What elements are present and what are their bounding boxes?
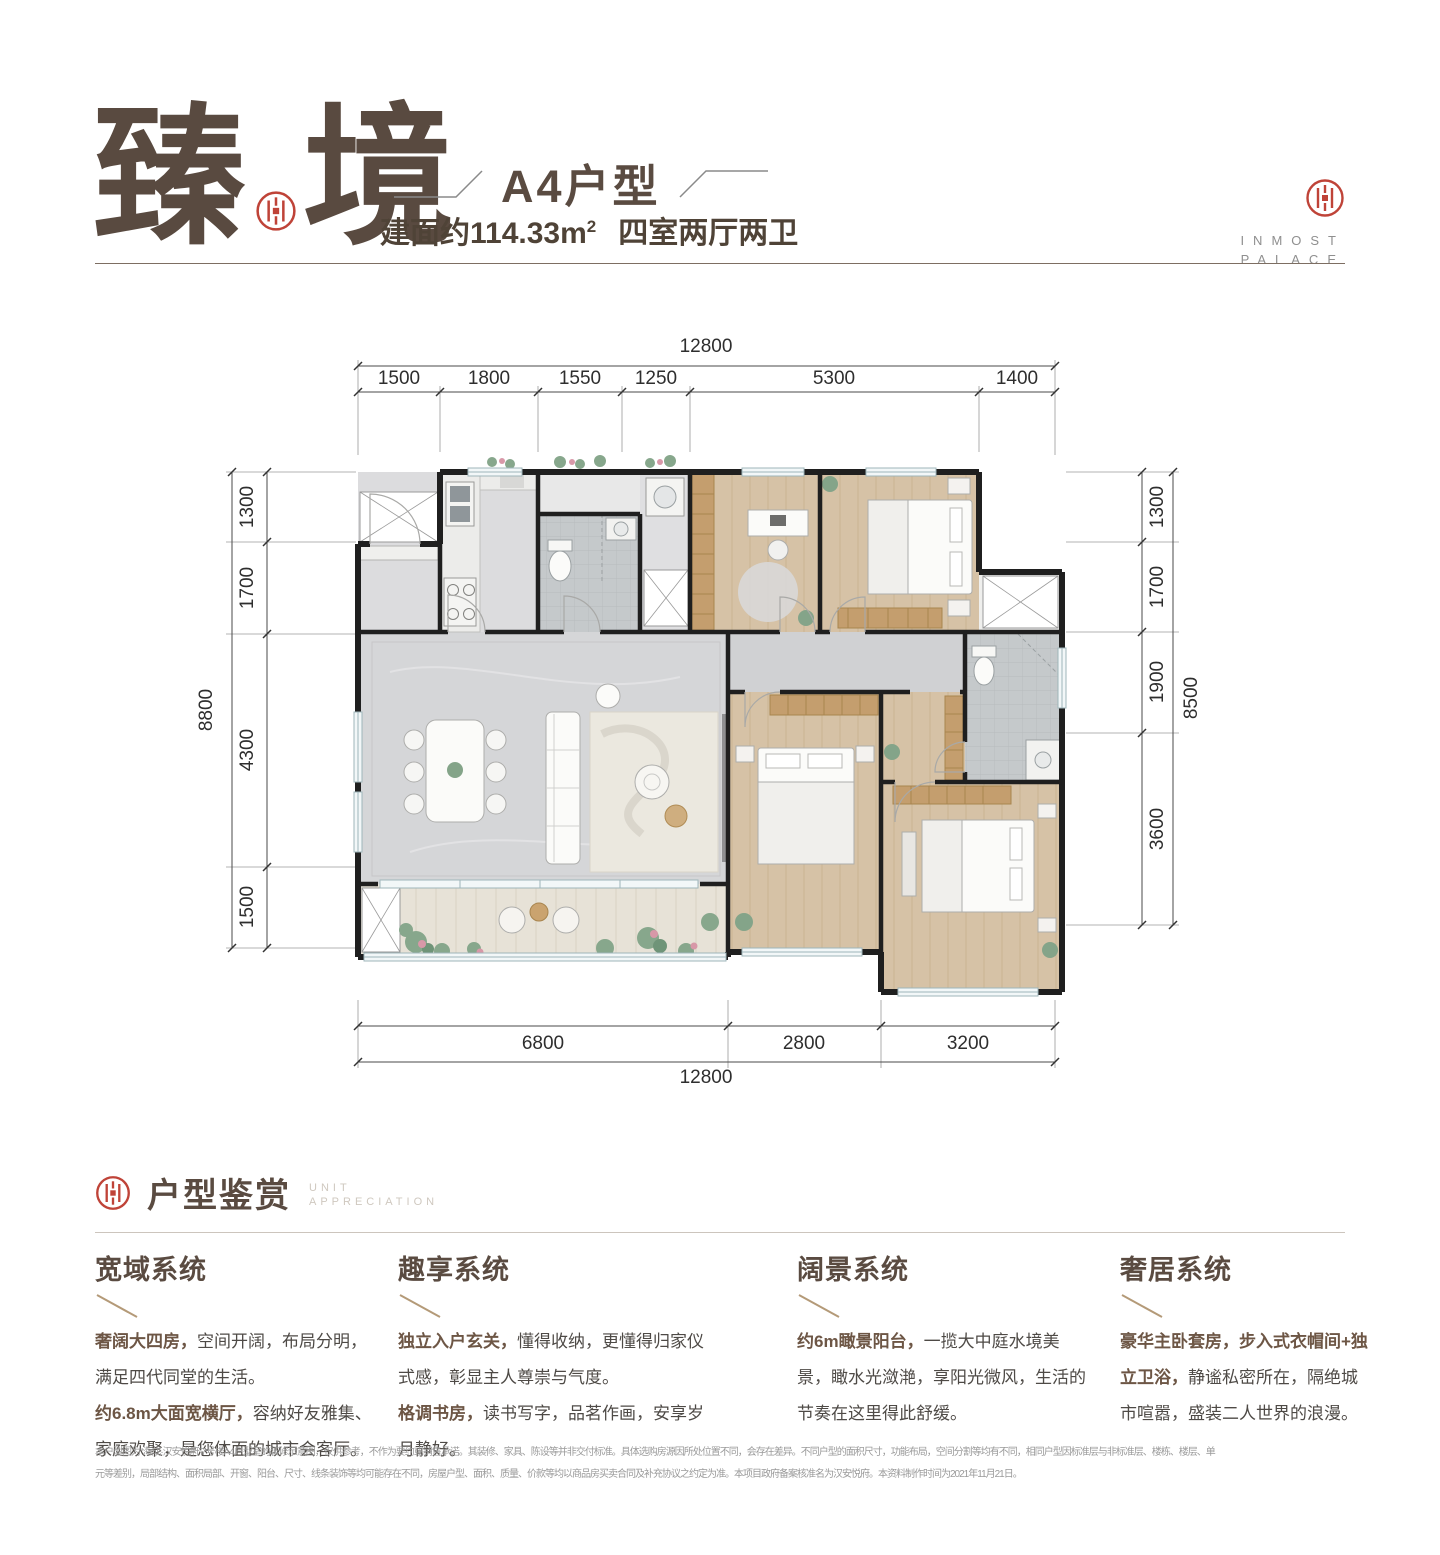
dining-set <box>404 720 506 822</box>
dim-top-total: 12800 <box>680 336 733 358</box>
section-subtitle: UNIT APPRECIATION <box>309 1181 438 1209</box>
heading-slash-decoration <box>797 1293 843 1319</box>
dim-top-seg: 1800 <box>468 368 510 390</box>
corridor-floor <box>690 632 979 692</box>
disclaimer-line-2: 元等差别，局部结构、面积局部、开窗、阳台、尺寸、线条装饰等均可能存在不同，房屋户… <box>95 1464 1375 1486</box>
dim-top-seg: 1550 <box>559 368 601 390</box>
section-header: 户型鉴赏 UNIT APPRECIATION <box>95 1168 438 1217</box>
feature-column-3: 阔景系统 约6m瞰景阳台，一揽大中庭水境美景，瞰水光潋滟，享阳光微风，生活的节奏… <box>797 1248 1087 1432</box>
dim-bottom-seg: 6800 <box>522 1033 564 1055</box>
dim-left-seg: 1500 <box>237 886 259 928</box>
section-seal-icon <box>95 1175 131 1211</box>
dim-bottom-total: 12800 <box>680 1067 733 1089</box>
dim-left-seg: 1700 <box>237 567 259 609</box>
dim-right-seg: 1300 <box>1147 486 1169 528</box>
flower-box <box>487 455 676 469</box>
dim-right-seg: 1900 <box>1147 661 1169 703</box>
column-heading: 宽域系统 <box>95 1248 383 1287</box>
feature-column-2: 趣享系统 独立入户玄关，懂得收纳，更懂得归家仪式感，彰显主人尊崇与气度。 格调书… <box>398 1248 713 1468</box>
feature-column-4: 奢居系统 豪华主卧套房，步入式衣帽间+独立卫浴，静谧私密所在，隔绝城市喧嚣，盛装… <box>1120 1248 1370 1432</box>
dim-top-seg: 5300 <box>813 368 855 390</box>
dim-top-seg: 1400 <box>996 368 1038 390</box>
dim-right-total: 8500 <box>1181 677 1203 719</box>
dim-top-seg: 1500 <box>378 368 420 390</box>
column-heading: 阔景系统 <box>797 1248 1087 1287</box>
feature-column-1: 宽域系统 奢阔大四房，空间开阔，布局分明，满足四代同堂的生活。 约6.8m大面宽… <box>95 1248 383 1468</box>
entry <box>360 492 438 560</box>
section-divider <box>95 1232 1345 1233</box>
column-heading: 奢居系统 <box>1120 1248 1370 1287</box>
floor-plan <box>350 452 1072 1012</box>
closet-nook <box>983 576 1058 628</box>
heading-slash-decoration <box>1120 1293 1166 1319</box>
heading-slash-decoration <box>398 1293 444 1319</box>
dim-bottom-seg: 2800 <box>783 1033 825 1055</box>
section-title: 户型鉴赏 <box>147 1168 291 1217</box>
dim-right-seg: 1700 <box>1147 566 1169 608</box>
dim-left-total: 8800 <box>196 689 218 731</box>
brochure-page: 臻 境 A4户型 建面约114.33m2四室两厅两卫 <box>0 0 1440 1555</box>
dim-right-seg: 3600 <box>1147 808 1169 850</box>
column-heading: 趣享系统 <box>398 1248 713 1287</box>
heading-slash-decoration <box>95 1293 141 1319</box>
dim-top-seg: 1250 <box>635 368 677 390</box>
dim-left-seg: 4300 <box>237 729 259 771</box>
sofa-area <box>546 684 730 872</box>
dim-bottom-seg: 3200 <box>947 1033 989 1055</box>
dim-left-seg: 1300 <box>237 486 259 528</box>
disclaimer: 本户型图为“海成·汉安悦府”7号楼A4户型室的装修示意图，仅供参考，不作为要约或… <box>95 1442 1375 1486</box>
disclaimer-line-1: 本户型图为“海成·汉安悦府”7号楼A4户型室的装修示意图，仅供参考，不作为要约或… <box>95 1442 1375 1464</box>
